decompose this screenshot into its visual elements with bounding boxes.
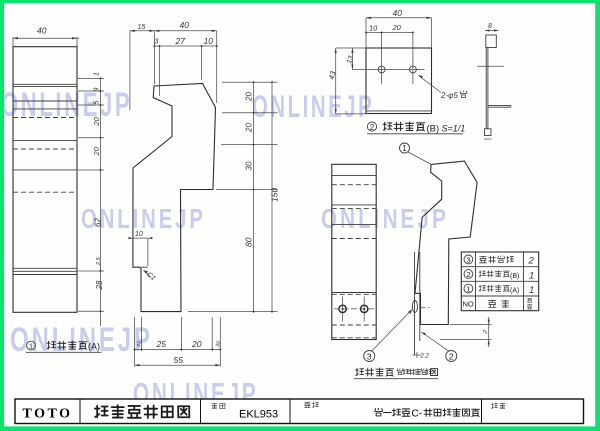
svg-text:1: 1 [529, 271, 534, 282]
svg-text:2: 2 [528, 256, 535, 267]
svg-text:2.2: 2.2 [420, 354, 430, 360]
svg-text:62: 62 [94, 218, 103, 227]
svg-text:1: 1 [94, 72, 101, 76]
svg-text:20: 20 [92, 116, 101, 126]
svg-text:5: 5 [94, 101, 101, 105]
svg-text:40: 40 [393, 8, 403, 18]
svg-text:20: 20 [245, 92, 254, 102]
svg-text:30: 30 [245, 161, 254, 170]
svg-text:3: 3 [466, 255, 470, 264]
svg-text:1: 1 [29, 342, 33, 351]
svg-text:EKL953: EKL953 [239, 409, 278, 421]
svg-text:40: 40 [180, 20, 190, 30]
svg-text:(B): (B) [427, 123, 440, 134]
svg-text:10: 10 [204, 36, 214, 46]
svg-text:20: 20 [392, 23, 402, 32]
svg-text:(A): (A) [510, 288, 519, 295]
svg-text:20: 20 [245, 123, 254, 133]
svg-text:ONLINEJP: ONLINEJP [1, 86, 132, 124]
svg-text:2.5: 2.5 [96, 256, 102, 266]
svg-text:(B): (B) [510, 273, 519, 280]
svg-text:3: 3 [155, 39, 159, 46]
svg-text:28: 28 [95, 280, 104, 290]
svg-text:9: 9 [94, 88, 101, 92]
svg-text:40: 40 [37, 26, 47, 36]
svg-text:S=1/1: S=1/1 [442, 123, 466, 133]
svg-text:ONLINEJP: ONLINEJP [252, 88, 374, 124]
svg-text:27: 27 [175, 36, 186, 46]
svg-text:2: 2 [449, 351, 454, 361]
svg-text:(A): (A) [88, 342, 100, 352]
svg-text:10: 10 [369, 24, 378, 33]
svg-text:25: 25 [156, 339, 167, 349]
svg-text:TOTO: TOTO [23, 406, 73, 421]
svg-text:15: 15 [138, 24, 146, 31]
svg-text:2: 2 [370, 123, 375, 132]
svg-text:8: 8 [488, 23, 492, 30]
svg-text:80: 80 [244, 237, 254, 247]
svg-text:55: 55 [174, 355, 184, 365]
svg-text:C-: C- [412, 409, 423, 420]
svg-text:ONLINEJP: ONLINEJP [10, 321, 153, 359]
svg-text:2: 2 [466, 270, 470, 279]
svg-text:10: 10 [135, 231, 143, 238]
svg-text:NO: NO [463, 300, 474, 309]
svg-text:20: 20 [92, 146, 101, 156]
svg-text:150: 150 [270, 188, 280, 202]
svg-text:20: 20 [191, 339, 202, 349]
svg-text:3: 3 [367, 351, 372, 361]
svg-text:1: 1 [466, 285, 470, 294]
svg-text:1: 1 [402, 144, 407, 153]
svg-text:1: 1 [529, 285, 534, 296]
svg-text:2-φ5: 2-φ5 [440, 91, 458, 100]
svg-text:ONLINEJP: ONLINEJP [321, 204, 449, 234]
